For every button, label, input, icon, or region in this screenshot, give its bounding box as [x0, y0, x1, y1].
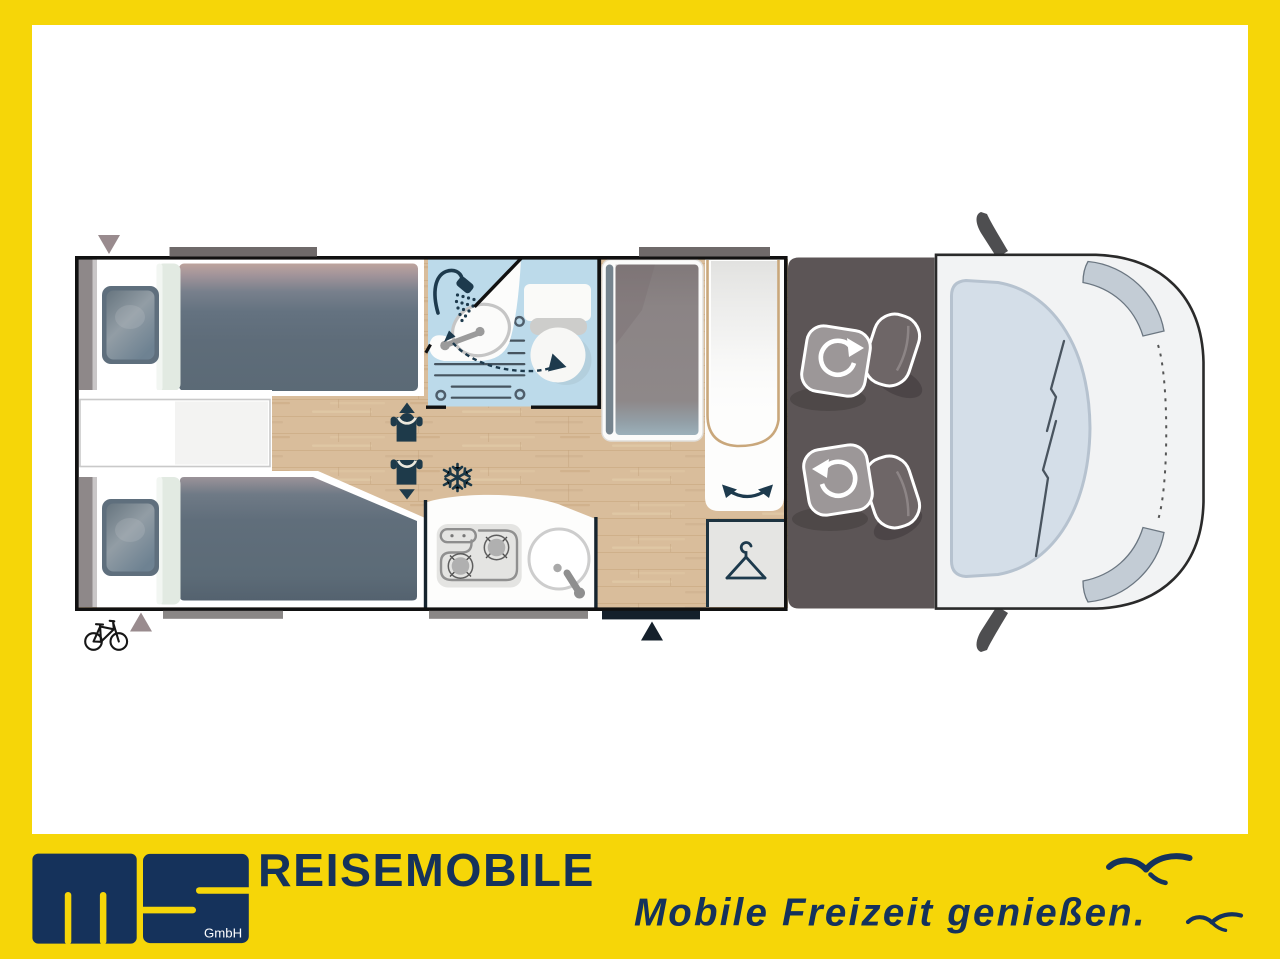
svg-text:Mobile Freizeit genießen.: Mobile Freizeit genießen. [634, 892, 1147, 935]
svg-text:GmbH: GmbH [204, 926, 242, 941]
svg-text:REISEMOBILE: REISEMOBILE [258, 844, 595, 896]
